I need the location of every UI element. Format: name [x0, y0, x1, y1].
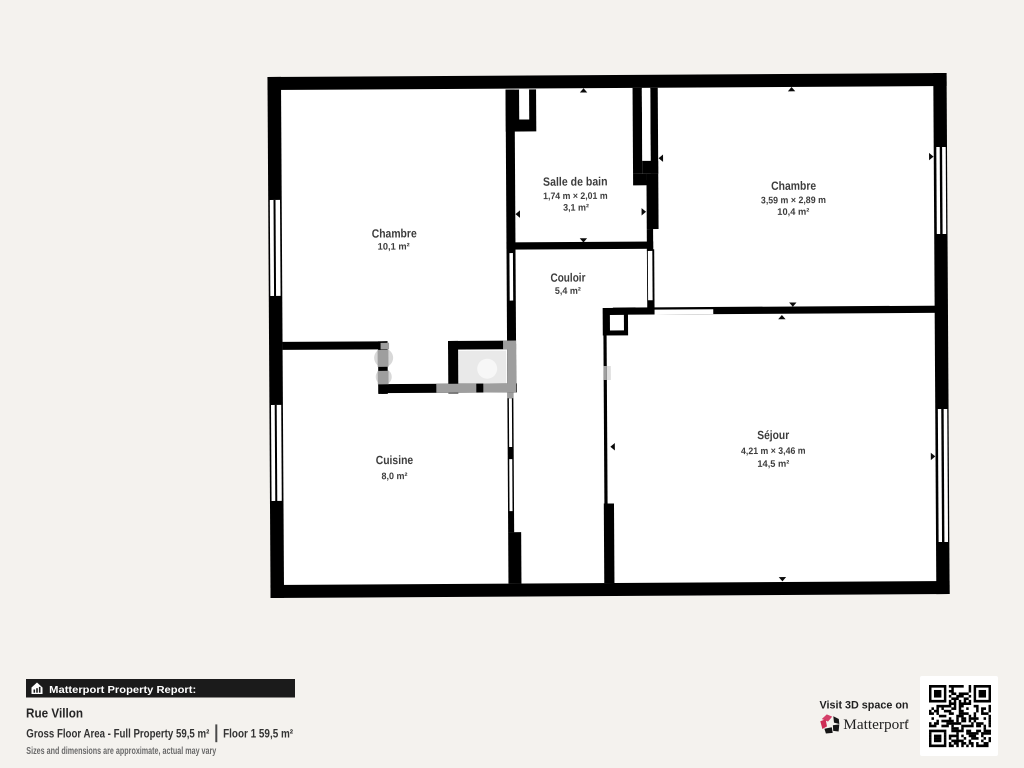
svg-text:Visit 3D space on: Visit 3D space on [820, 699, 909, 711]
svg-text:Salle de bain: Salle de bain [543, 174, 608, 188]
svg-text:10,4 m²: 10,4 m² [777, 207, 809, 218]
svg-text:8,0 m²: 8,0 m² [381, 471, 407, 482]
svg-text:3,1 m²: 3,1 m² [563, 203, 589, 214]
svg-text:Chambre: Chambre [372, 226, 417, 240]
svg-text:Couloir: Couloir [550, 271, 585, 285]
svg-text:Floor 1 59,5 m²: Floor 1 59,5 m² [223, 727, 293, 741]
svg-text:3,59 m × 2,89 m: 3,59 m × 2,89 m [761, 195, 826, 206]
svg-text:4,21 m × 3,46 m: 4,21 m × 3,46 m [741, 446, 806, 457]
svg-text:Sizes and dimensions are appro: Sizes and dimensions are approximate, ac… [26, 746, 216, 757]
svg-text:Chambre: Chambre [771, 179, 816, 193]
svg-text:Matterport: Matterport [843, 717, 908, 733]
svg-text:Matterport Property Report:: Matterport Property Report: [49, 684, 196, 696]
svg-text:Rue Villon: Rue Villon [26, 705, 83, 720]
svg-text:Gross Floor Area - Full Proper: Gross Floor Area - Full Property 59,5 m² [26, 727, 209, 741]
svg-text:Cuisine: Cuisine [376, 453, 414, 467]
svg-text:5,4 m²: 5,4 m² [555, 286, 581, 297]
svg-text:1,74 m × 2,01 m: 1,74 m × 2,01 m [543, 191, 608, 202]
svg-text:10,1 m²: 10,1 m² [378, 241, 410, 252]
svg-text:Séjour: Séjour [757, 428, 789, 442]
svg-text:14,5 m²: 14,5 m² [757, 459, 789, 470]
